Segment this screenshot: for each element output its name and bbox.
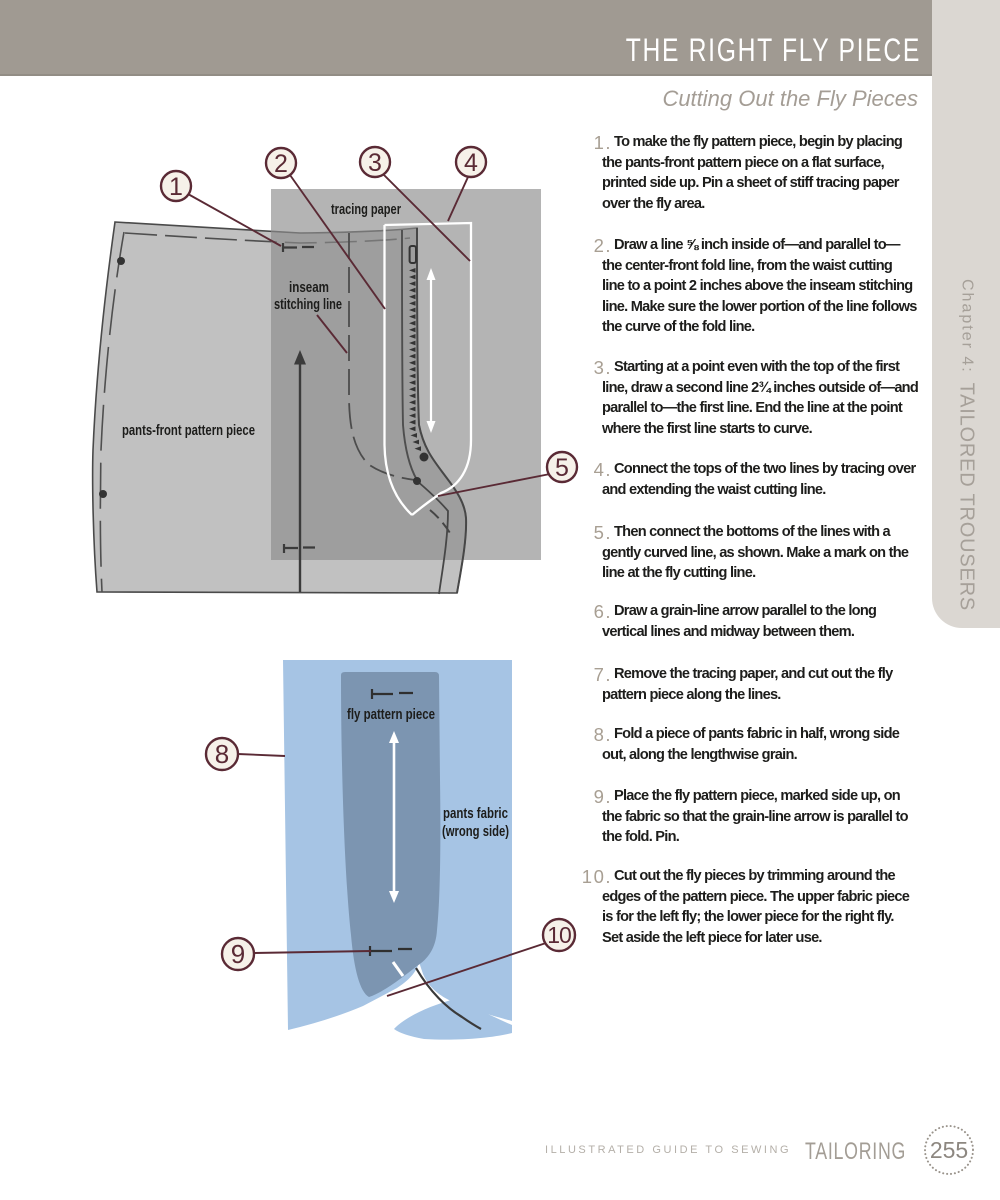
svg-text:1: 1: [169, 173, 183, 201]
svg-text:2: 2: [274, 150, 288, 178]
svg-text:9: 9: [231, 939, 245, 969]
svg-text:pants fabric: pants fabric: [443, 805, 508, 822]
svg-text:tracing paper: tracing paper: [331, 201, 401, 218]
svg-text:8: 8: [215, 739, 229, 769]
svg-text:inseam: inseam: [289, 279, 329, 296]
svg-text:5: 5: [555, 454, 569, 482]
svg-text:fly pattern piece: fly pattern piece: [347, 706, 435, 723]
svg-text:stitching line: stitching line: [274, 296, 342, 313]
svg-text:pants-front pattern piece: pants-front pattern piece: [122, 422, 255, 439]
svg-text:4: 4: [464, 149, 478, 177]
svg-text:255: 255: [930, 1137, 968, 1163]
svg-text:10: 10: [547, 922, 571, 948]
svg-text:3: 3: [368, 149, 382, 177]
svg-text:(wrong side): (wrong side): [442, 823, 509, 840]
